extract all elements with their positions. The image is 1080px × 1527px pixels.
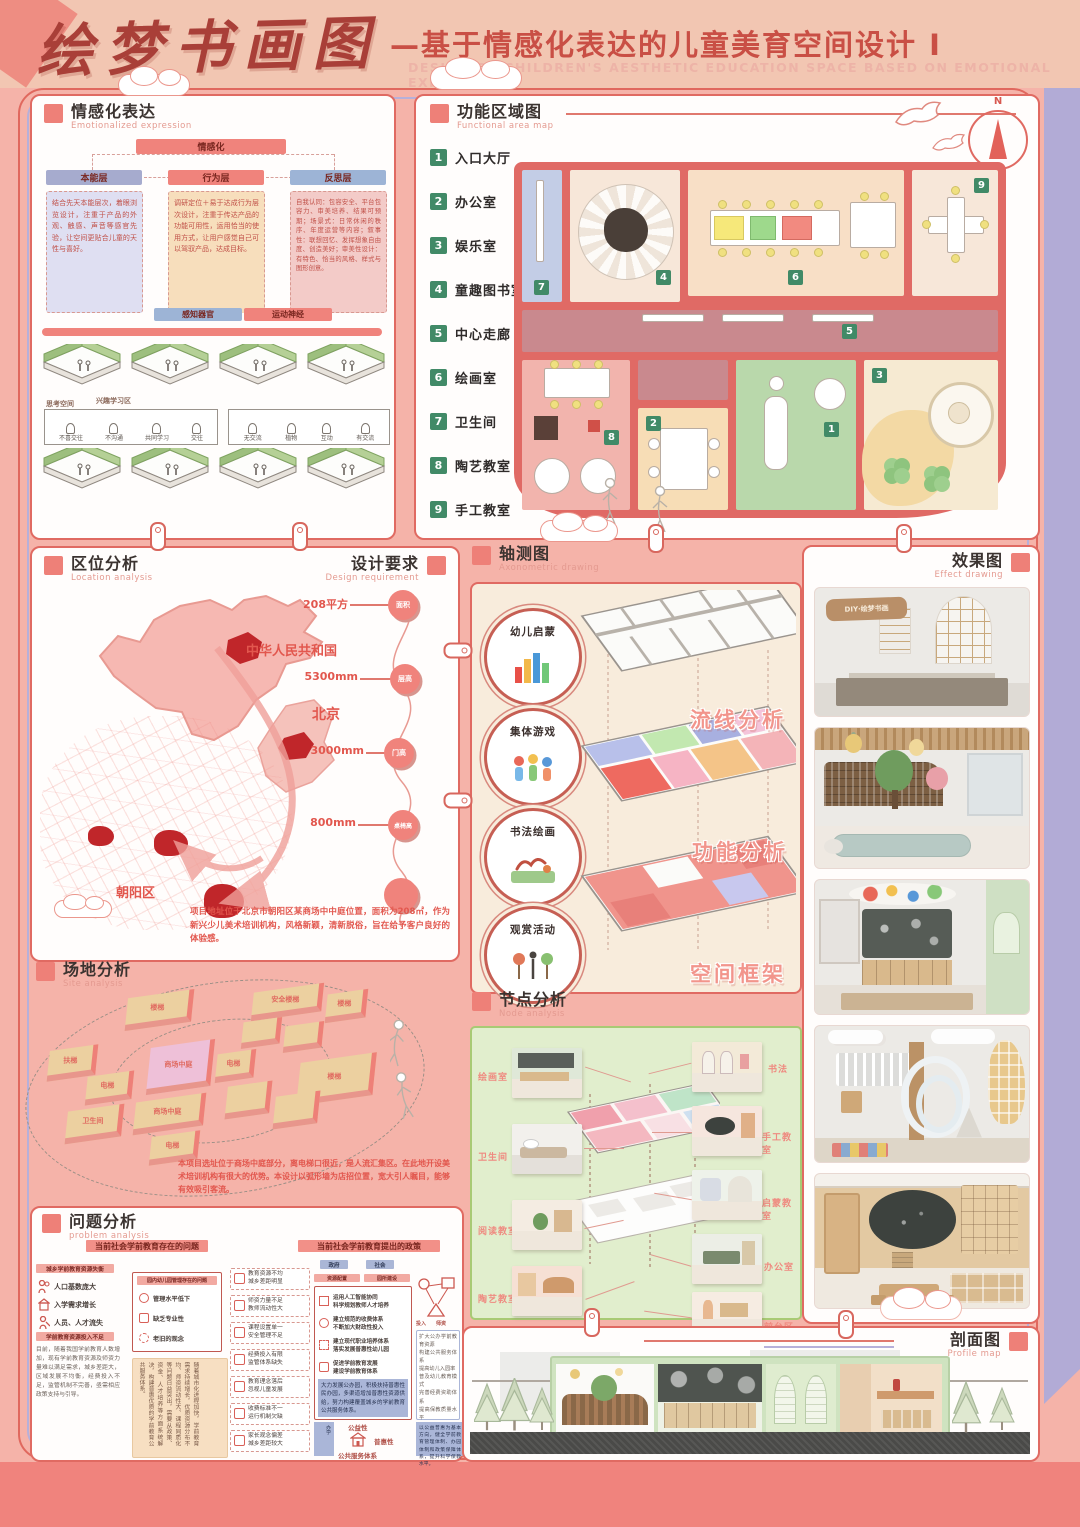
legend-item: 5中心走廊 [430,324,511,343]
section-title: 设计要求 [326,556,420,573]
behavior-strip: 不喜交往 不沟通 共同学习 交往 [44,409,218,445]
section-subtitle-en: Profile map [947,1349,1001,1359]
poster-page: 绘梦书画图 —基于情感化表达的儿童美育空间设计 Ⅰ DESIGN OF CHIL… [0,0,1080,1527]
node-thumb-calligraphy [692,1042,762,1092]
stat-row: 人口基数庞大 [38,1280,96,1294]
room-play: 3 [864,360,998,510]
policy-chip: 社会 [366,1260,394,1269]
node-thumb-pottery [512,1266,582,1316]
node-thumb-handcraft [692,1106,762,1156]
layer-text: 自我认同：包容安全、平台包容力、审美培养、结果可预期；场景式：日常休闲的秩序、年… [290,191,387,313]
section-square-icon [44,556,63,575]
panel-functional-area: 功能区域图 Functional area map 1入口大厅 2办公室 3娱乐… [414,94,1040,540]
calligraphy-icon [509,853,557,885]
node-label: 办公室 [764,1260,794,1273]
legend-item: 3娱乐室 [430,236,497,255]
panel-section-drawing: 剖面图 Profile map [462,1326,1040,1462]
section-subtitle-en: Axonometric drawing [499,563,599,573]
effect-render-play-room [814,1025,1030,1163]
panel-node-analysis: 节点分析 Node analysis [468,992,800,1322]
iso-sketch [42,448,124,500]
connector-pin [444,643,473,659]
layer-text: 结合先天本能层次，着眼浏览设计，注重于产品的外观、触感、声音等感官先验，让空间更… [46,191,143,313]
issue-box: 收费标准不一运行机制欠缺 [230,1403,310,1425]
iso-sketch [306,448,388,500]
node-thumb-enlighten [692,1170,762,1220]
section-subtitle-en: Emotionalized expression [71,121,192,131]
dove-icon [930,130,970,158]
req-circle: 门高 [384,738,414,768]
mgmt-box: 园内幼儿园管理存在的问题 管理水平低下 缺乏专业性 老旧的观念 [132,1272,222,1352]
cloud-decoration [54,900,112,918]
axon-stacks [568,590,796,986]
connector-pin [648,524,664,553]
section-title: 效果图 [935,553,1004,570]
issue-box: 教育理念落后忽视儿童发展 [230,1376,310,1398]
strip-title: 思考空间 [46,399,74,409]
axon-inner-box: 幼儿启蒙 集体游戏 书法绘画 [470,582,802,994]
node-thumb-reading [512,1200,582,1250]
connector-pin [150,522,166,551]
iso-sketch [306,344,388,396]
node-thumb-bathroom [512,1124,582,1174]
iso-sketch [218,344,300,396]
chart-bottom-right: 运动神经 [244,308,332,321]
layer-name: 反思层 [290,170,386,185]
figure-icon [287,423,296,434]
issue-box: 教育资源不均城乡差距明显 [230,1268,310,1290]
figure-icon [322,423,331,434]
connector-pin [444,793,473,809]
node-thumb-painting [512,1048,582,1098]
connector-pin [292,522,308,551]
pine-trees-left [474,1378,554,1434]
tag-label: 普惠性 [374,1436,394,1446]
behavior-strip: 无交流 植物 互动 有交流 [228,409,390,445]
cloud-decoration [430,66,522,90]
clover-mat [922,464,952,494]
section-title: 剖面图 [947,1332,1001,1349]
room-library: 4 [570,170,680,302]
strip-title: 兴趣学习区 [96,396,131,406]
issue-icon [234,1273,245,1284]
chart-root: 情感化 [136,139,286,154]
policy-note-2: 以公益普惠为基本方向，健全学前教育管理体制、办园体制和政策保障体系，提升科学保教… [416,1422,464,1456]
connector-pin [838,1310,854,1339]
stat-row: 人员、人才流失 [38,1316,103,1330]
map-label-district: 朝阳区 [116,882,155,901]
sketch-running-child [390,1020,416,1130]
node-label: 启蒙教室 [762,1196,800,1222]
policy-chip: 园所建设 [364,1274,410,1282]
section-title: 区位分析 [71,556,153,573]
north-compass-icon: N [968,110,1028,170]
axon-layer-label: 功能分析 [692,836,788,866]
section-subtitle-en: Effect drawing [935,570,1004,580]
section-subtitle-en: Node analysis [499,1009,567,1019]
panel-axonometric: 轴测图 Axonometric drawing 幼儿启蒙 集体游戏 [468,546,800,992]
figure-icon [192,423,201,434]
effect-render-reading-room [814,727,1030,869]
policy-note-1: 大力发展公办园，积极扶持普惠性民办园，多渠道增加普惠性资源供给，努力构建覆盖城乡… [318,1379,408,1417]
blue-vertical-note: 办学 [314,1422,334,1456]
room-craft: 9 [912,170,998,296]
policy-box-2: 扩大公办学前教育资源构建公共服务体系提高幼儿入园率普及幼儿教育模式完善经费资助体… [416,1330,460,1420]
legend-item: 2办公室 [430,192,497,211]
net-label: 投入 [416,1320,426,1327]
layer-text: 调研定位＋易于达成行为层次设计，注重于传达产品的功能可用性，运用恰当的使用方式，… [168,191,265,313]
section-subtitle-en: Site analysis [63,979,131,989]
tag-label: 公益性 [348,1422,368,1432]
location-description: 项目地址位于北京市朝阳区某商场中中庭位置，面积为208㎡，作为新兴少儿美术培训机… [190,906,450,947]
bottom-pink-band [0,1462,1080,1527]
panel-problem-analysis: 问题分析 problem analysis 当前社会学前教育存在的问题 当前社会… [30,1206,464,1462]
site-description: 本项目选址位于商场中庭部分，离电梯口很近，是人流汇集区。在此地开设美术培训机构有… [178,1158,450,1196]
room-corridor: 5 [522,310,998,352]
network-diagram [416,1274,458,1318]
orange-note-box: 随着城市化进程加快，学前教育需求持续增长，优质资源分布不均、师资流动性大、课程同… [132,1358,228,1458]
figure-icon [152,423,161,434]
site-block-plain [224,1080,272,1119]
layer-name: 行为层 [168,170,264,185]
figure-icon [109,423,118,434]
iso-sketch [130,448,212,500]
policy-chip: 政府 [320,1260,348,1269]
corridor-locker [638,360,728,400]
diy-sign: DIY·绘梦书画 [844,603,888,615]
tag-label: 公共服务体系 [338,1450,377,1460]
connector-pin [896,524,912,553]
panel-site-analysis: 场地分析 Site analysis 楼梯 安全楼梯 楼梯 扶梯 电梯 商场中庭… [30,962,456,1205]
req-value: 208平方 [268,596,348,612]
effect-render-reception: DIY·绘梦书画 [814,587,1030,717]
effect-render-art-classroom [814,879,1030,1015]
iso-sketch [130,344,212,396]
cloud-decoration [540,520,618,542]
figure-icon [361,423,370,434]
section-title: 节点分析 [499,992,567,1009]
ground-strip [470,1432,1030,1454]
floor-plan: 7 4 6 [514,162,1006,518]
problem-subbar: 城乡学前教育资源失衡 [36,1264,114,1273]
chart-bottom-left: 感知器官 [154,308,242,321]
iso-sketch [218,448,300,500]
cloud-decoration [118,74,190,96]
school-demand-icon [38,1298,50,1312]
poster-title-main: —基于情感化表达的儿童美育空间设计 Ⅰ [390,22,942,64]
net-label: 师资 [436,1320,446,1327]
section-square-icon [44,104,63,123]
section-square-icon [42,1214,61,1233]
figure-icon [66,423,75,434]
req-value: 800mm [276,816,356,829]
req-circle: 层高 [390,664,420,694]
legend-item: 6绘画室 [430,368,497,387]
node-label: 卫生间 [478,1150,508,1163]
layer-name: 本能层 [46,170,142,185]
req-circle: 桌椅高 [388,810,418,840]
connector-pin [584,1308,600,1337]
building-section [550,1356,950,1438]
room-painting: 6 [688,170,904,296]
panel-emotional-expression: 情感化表达 Emotionalized expression 情感化 本能层 行… [30,94,396,540]
section-square-icon [1011,553,1030,572]
poster-title-calligraphy: 绘梦书画图 [35,0,382,89]
policy-chip: 资源配置 [314,1274,360,1282]
problem-bar-left: 当前社会学前教育存在的问题 [86,1240,208,1252]
site-marker [88,826,114,846]
divider-bar [42,328,382,336]
iso-sketch [42,344,124,396]
legend-item: 4童趣图书室 [430,280,525,299]
node-label: 书法 [768,1062,788,1075]
req-circle: 面积 [388,590,418,620]
map-label-city: 北京 [312,704,340,724]
figure-icon [248,423,257,434]
policy-box-1: 运用人工智能协同科学规划教师人才培养 建立规范的收费体系不断加大财政性投入 建立… [314,1286,412,1420]
section-title: 问题分析 [69,1214,149,1231]
req-value: 5300mm [278,670,358,683]
site-block-plain [272,1090,320,1129]
site-block: 电梯 [215,1049,257,1083]
node-thumb-office [692,1234,762,1284]
outdoor-icon [509,949,557,983]
legend-item: 8陶艺教室 [430,456,511,475]
room-bathroom: 7 [522,170,562,302]
axon-layer-label: 流线分析 [690,704,786,734]
section-title: 场地分析 [63,962,131,979]
problem-bar-right: 当前社会学前教育提出的政策 [298,1240,440,1252]
panel-effect-drawings: 效果图 Effect drawing DIY·绘梦书画 [802,545,1040,1324]
school-icon [350,1432,366,1448]
issue-box: 课程设置单一安全管理不足 [230,1322,310,1344]
right-purple-band [1044,4,1080,1404]
axon-layer-label: 空间框架 [690,958,786,988]
population-icon [38,1280,50,1294]
cloud-decoration [880,1296,962,1320]
effect-render-blackboard-room [814,1173,1030,1309]
site-block-atrium: 商场中庭 [146,1039,215,1095]
section-square-icon [1009,1332,1028,1351]
bar-chart-icon [511,651,555,685]
legend-item: 1入口大厅 [430,148,511,167]
section-square-icon [36,962,55,981]
group-play-icon [509,751,557,785]
map-label-country: 中华人民共和国 [246,640,337,659]
clover-mat [882,456,912,486]
section-title: 功能区域图 [457,104,553,121]
problem-note-left: 目前，随着我国学前教育人数增加，现有学前教育资源及师资力量难以满足需求，城乡差距… [36,1346,120,1400]
talent-loss-icon [38,1316,50,1330]
node-label: 手工教室 [762,1130,800,1156]
section-square-icon [427,556,446,575]
section-square-icon [472,546,491,565]
pine-trees-right [952,1380,1028,1434]
site-marker [154,830,188,856]
problem-subbar: 学前教育资源投入不足 [36,1332,114,1341]
section-title: 轴测图 [499,546,599,563]
req-value: 3000mm [284,744,364,757]
room-entrance-hall: 1 [736,360,856,510]
section-subtitle-en: Functional area map [457,121,553,131]
section-square-icon [472,992,491,1011]
section-title: 情感化表达 [71,104,192,121]
issue-box: 师资力量不足教师流动性大 [230,1295,310,1317]
legend-item: 9手工教室 [430,500,511,519]
legend-item: 7卫生间 [430,412,497,431]
node-green-box: 绘画室 卫生间 阅读教室 陶艺教室 书法 手工教室 启蒙教室 办公室 前台区 [470,1026,802,1320]
issue-box: 家长观念偏差城乡差距较大 [230,1430,310,1452]
stat-row: 入学需求增长 [38,1298,96,1312]
issue-box: 经费投入有限监管体系缺失 [230,1349,310,1371]
node-label: 绘画室 [478,1070,508,1083]
section-square-icon [430,104,449,123]
